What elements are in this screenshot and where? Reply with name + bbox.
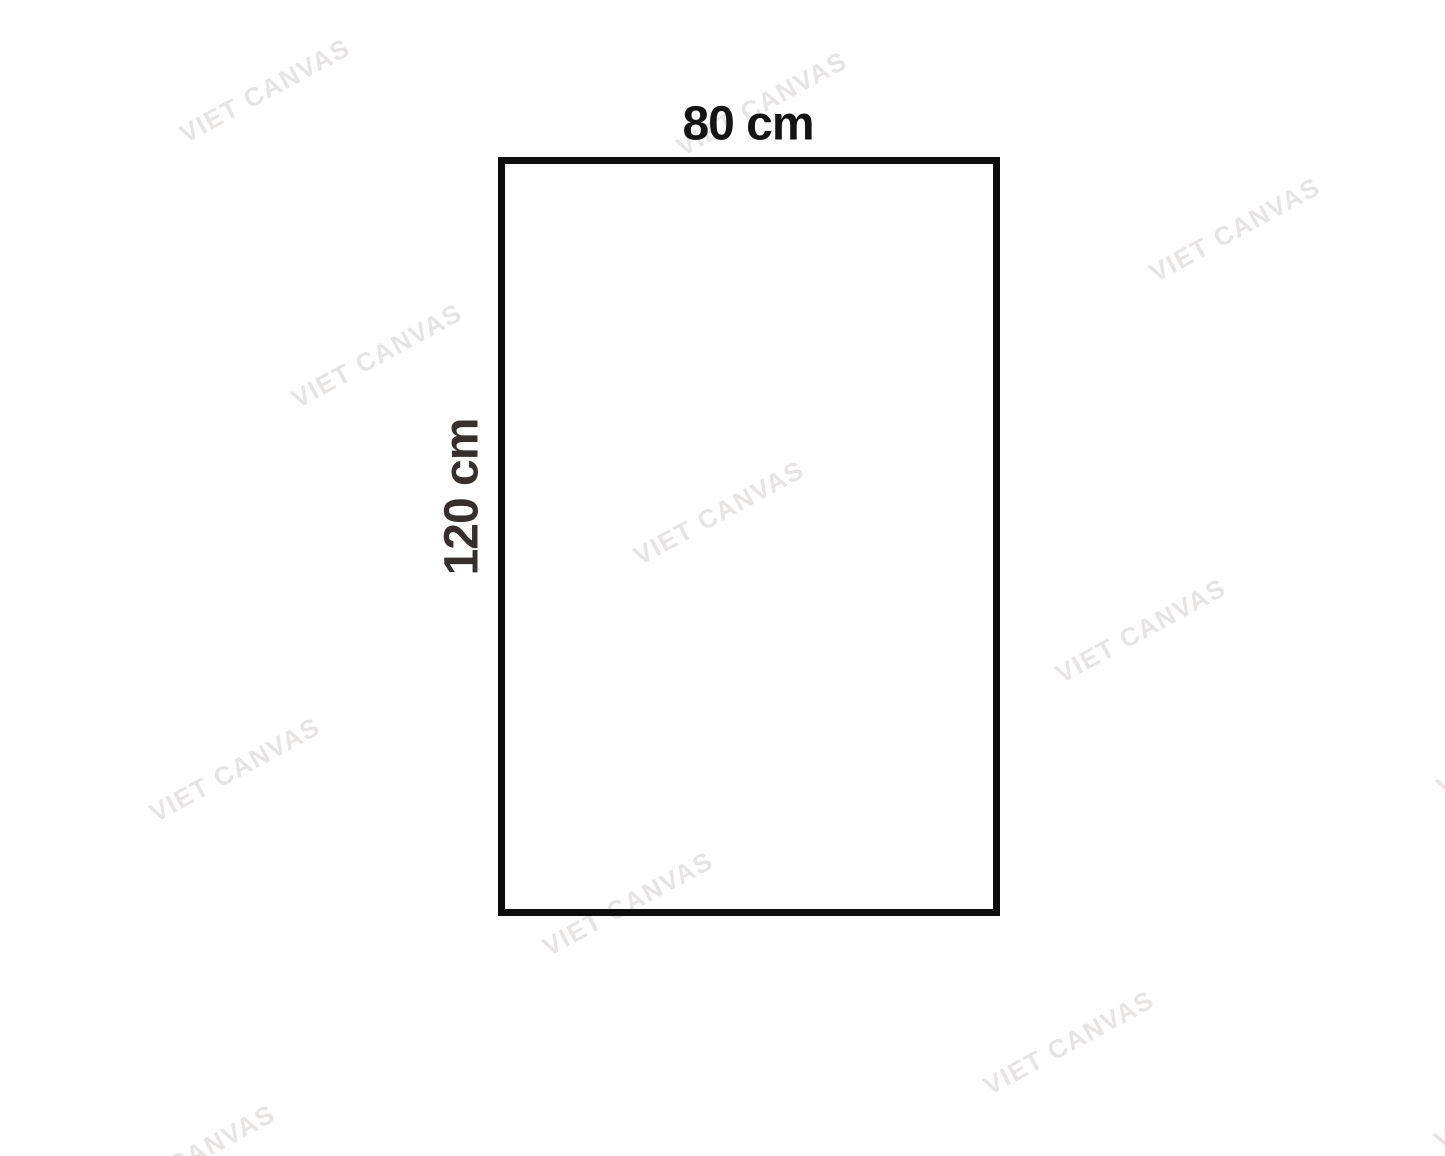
watermark-text: VIET CANVAS [1429, 1039, 1445, 1156]
watermark-text: VIET CANVAS [978, 984, 1159, 1102]
watermark-text: VIET CANVAS [99, 1098, 280, 1156]
height-dimension-label: 120 cm [435, 419, 490, 576]
watermark-text: VIET CANVAS [174, 32, 355, 150]
canvas-size-diagram: VIET CANVAS VIET CANVAS VIET CANVAS VIET… [0, 0, 1445, 1156]
width-dimension-label: 80 cm [682, 97, 813, 152]
watermark-text: VIET CANVAS [1050, 572, 1231, 690]
canvas-outline-rectangle [498, 157, 1000, 916]
watermark-text: VIET CANVAS [1144, 171, 1325, 289]
watermark-text: VIET CANVAS [286, 297, 467, 415]
watermark-text: VIET CANVAS [144, 711, 325, 829]
watermark-text: VIET CANVAS [1431, 685, 1445, 803]
